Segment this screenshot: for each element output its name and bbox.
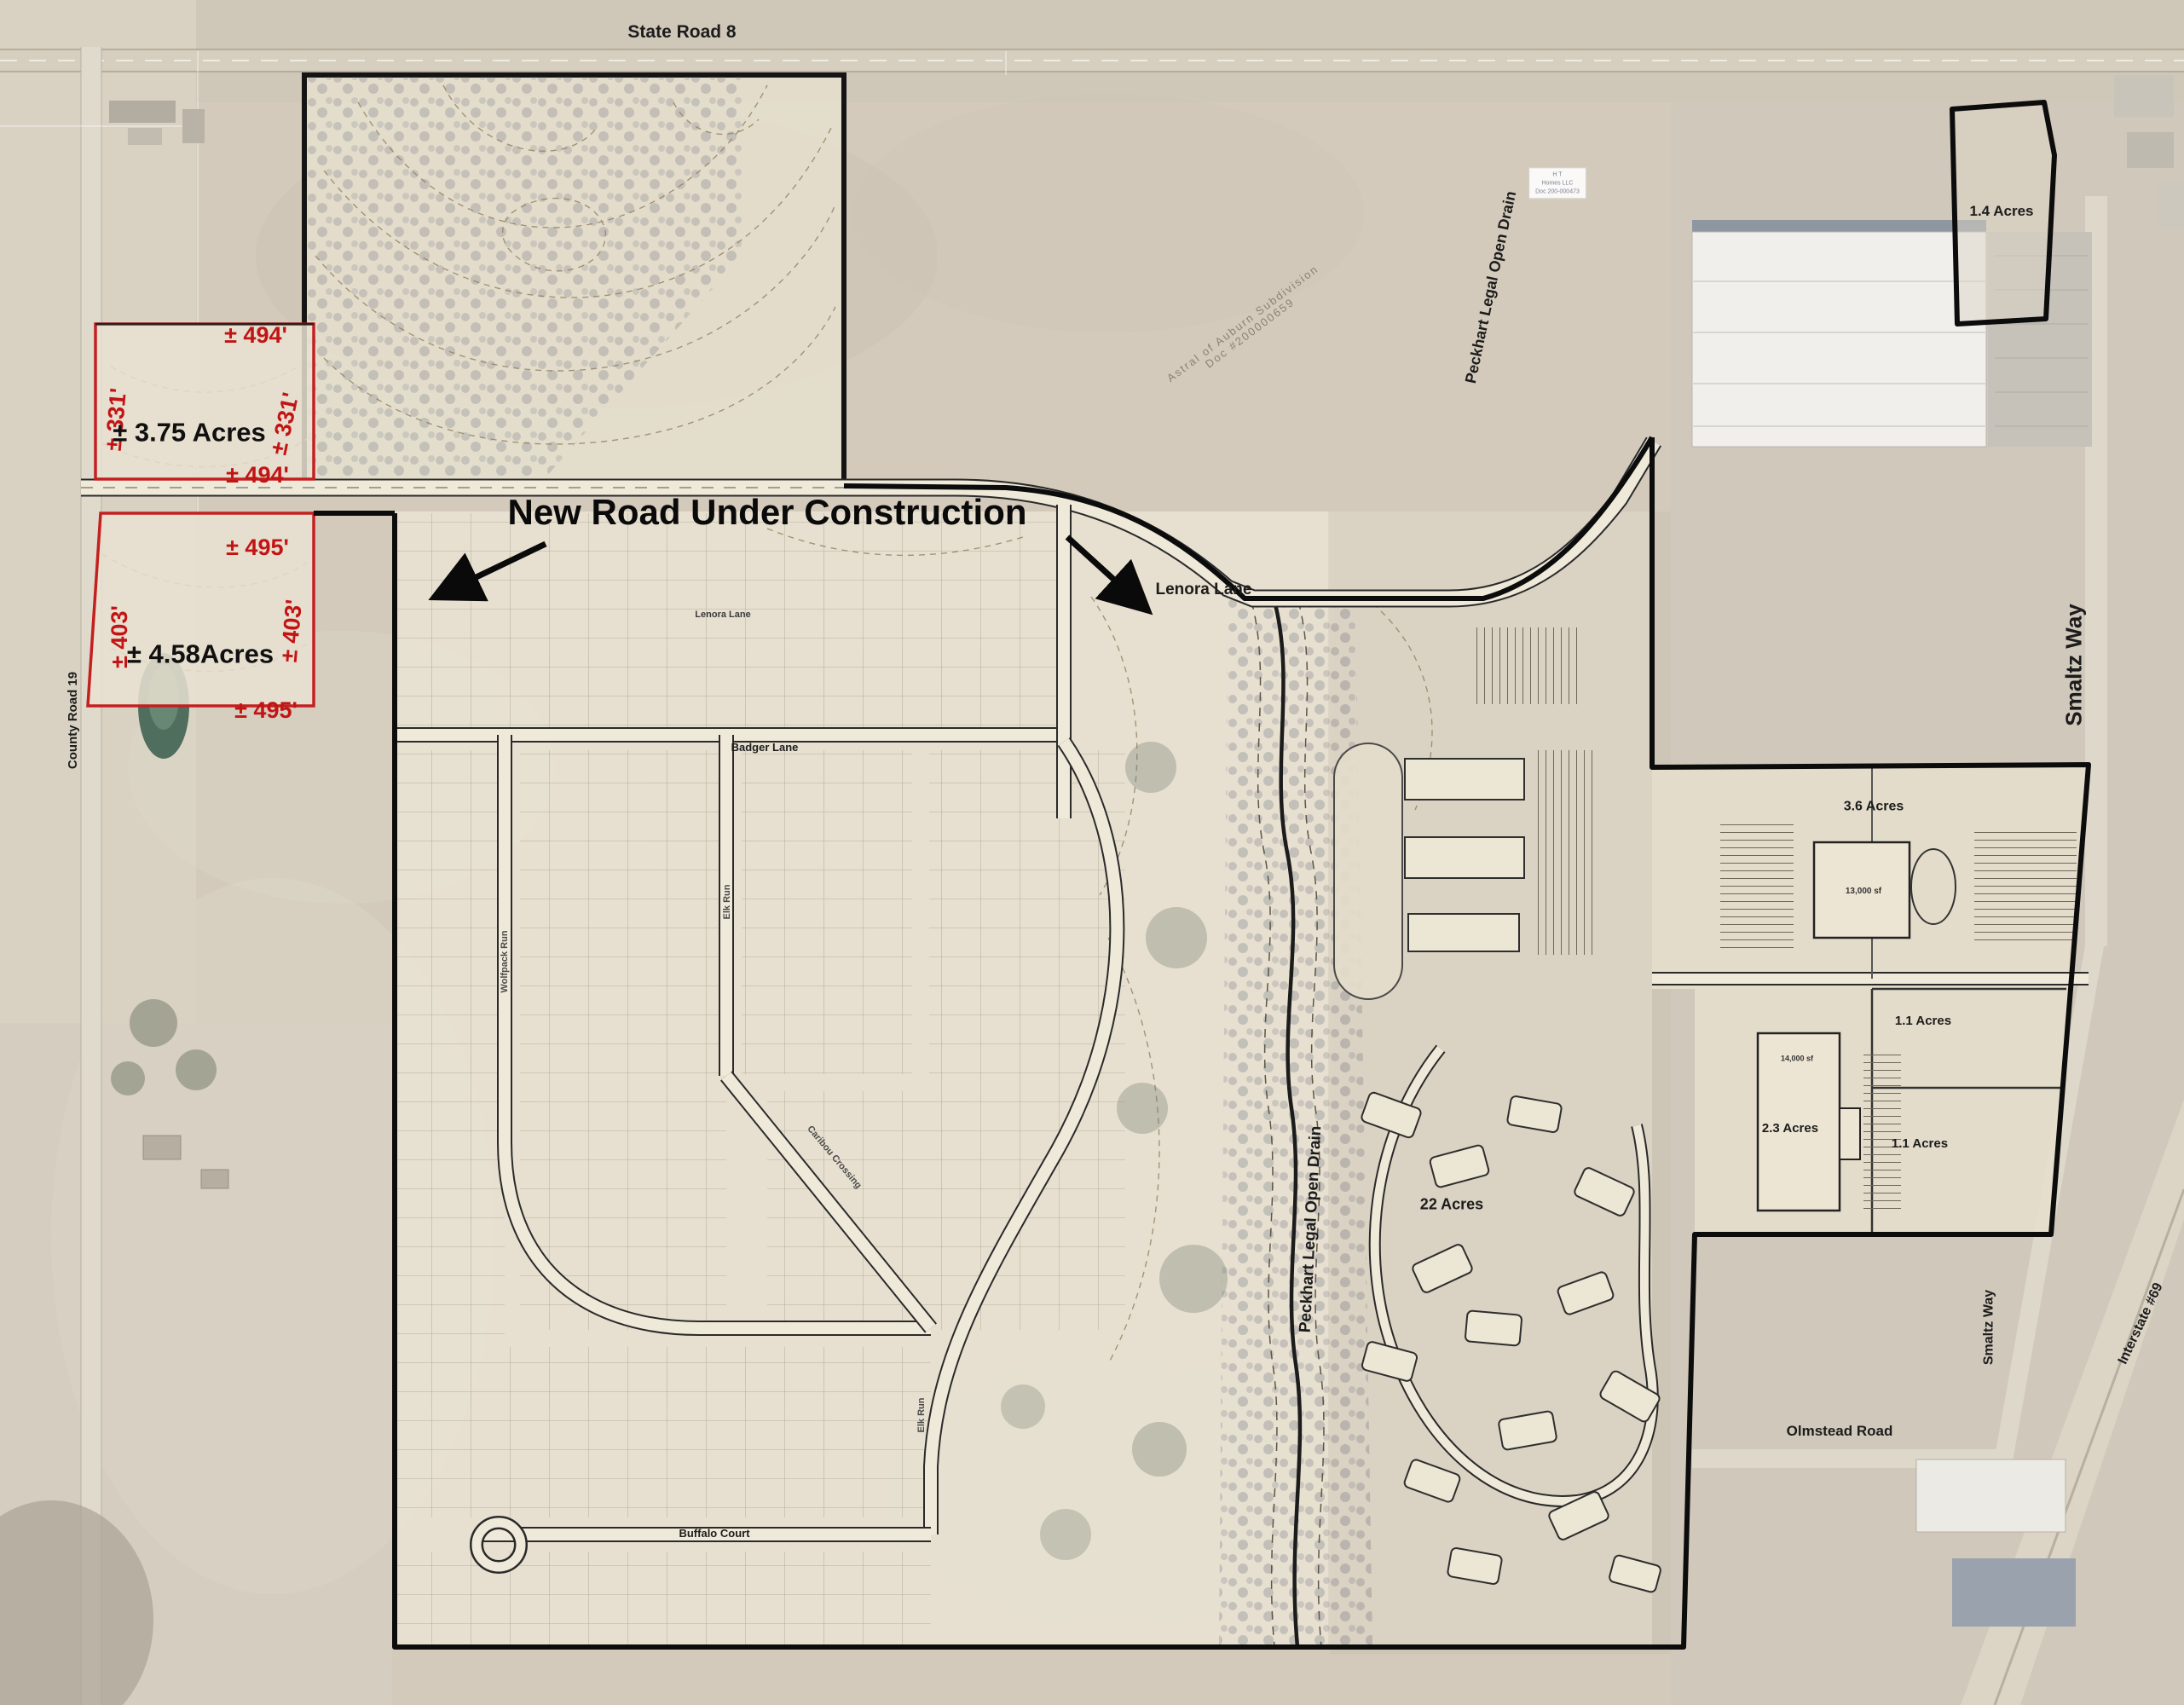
owner-note-box: H T Homes LLC Doc 200-000473 <box>1528 167 1586 199</box>
road-label-smaltz-way-upper: Smaltz Way <box>2062 604 2085 726</box>
road-label-state-road-8: State Road 8 <box>627 23 736 42</box>
road-label-elk-run-upper: Elk Run <box>723 885 733 920</box>
area-375: ± 3.75 Acres <box>113 419 266 448</box>
dim-375-bottom: ± 494' <box>226 463 289 487</box>
road-label-lenora-lane: Lenora Lane <box>1156 581 1252 598</box>
road-label-smaltz-way-lower: Smaltz Way <box>1983 1290 1997 1365</box>
new-road-annotation: New Road Under Construction <box>507 494 1026 531</box>
dim-458-bottom: ± 495' <box>234 698 298 722</box>
parcel-label-1-4-acres: 1.4 Acres <box>1970 204 2034 219</box>
building-label-14000sf: 14,000 sf <box>1781 1055 1813 1062</box>
road-label-olmstead-road: Olmstead Road <box>1787 1424 1893 1439</box>
dim-458-right: ± 403' <box>277 598 307 663</box>
dim-375-top: ± 494' <box>224 323 287 347</box>
parcel-label-22-acres: 22 Acres <box>1420 1197 1483 1213</box>
area-458: ± 4.58Acres <box>127 641 274 669</box>
building-label-13000sf: 13,000 sf <box>1846 887 1881 897</box>
owner-note-line1: H T <box>1535 170 1580 179</box>
road-label-elk-run-lower: Elk Run <box>917 1398 927 1433</box>
aerial-plat-map: State Road 8 New Road Under Construction… <box>0 0 2184 1705</box>
road-label-wolfpack-run: Wolfpack Run <box>500 930 511 992</box>
dim-458-top: ± 495' <box>226 535 289 559</box>
parcel-label-1-1-acres-a: 1.1 Acres <box>1895 1014 1951 1028</box>
road-label-lenora-lane-small: Lenora Lane <box>695 610 750 621</box>
road-label-county-road-19: County Road 19 <box>66 672 80 769</box>
owner-note-line2: Homes LLC <box>1535 179 1580 188</box>
road-label-buffalo-court: Buffalo Court <box>679 1528 749 1540</box>
owner-note-line3: Doc 200-000473 <box>1535 188 1580 196</box>
parcel-label-2-3-acres: 2.3 Acres <box>1762 1122 1818 1136</box>
road-label-badger-lane: Badger Lane <box>731 742 799 754</box>
parcel-label-1-1-acres-b: 1.1 Acres <box>1892 1137 1948 1151</box>
parcel-label-3-6-acres: 3.6 Acres <box>1844 800 1904 815</box>
map-graphics <box>0 0 2184 1705</box>
